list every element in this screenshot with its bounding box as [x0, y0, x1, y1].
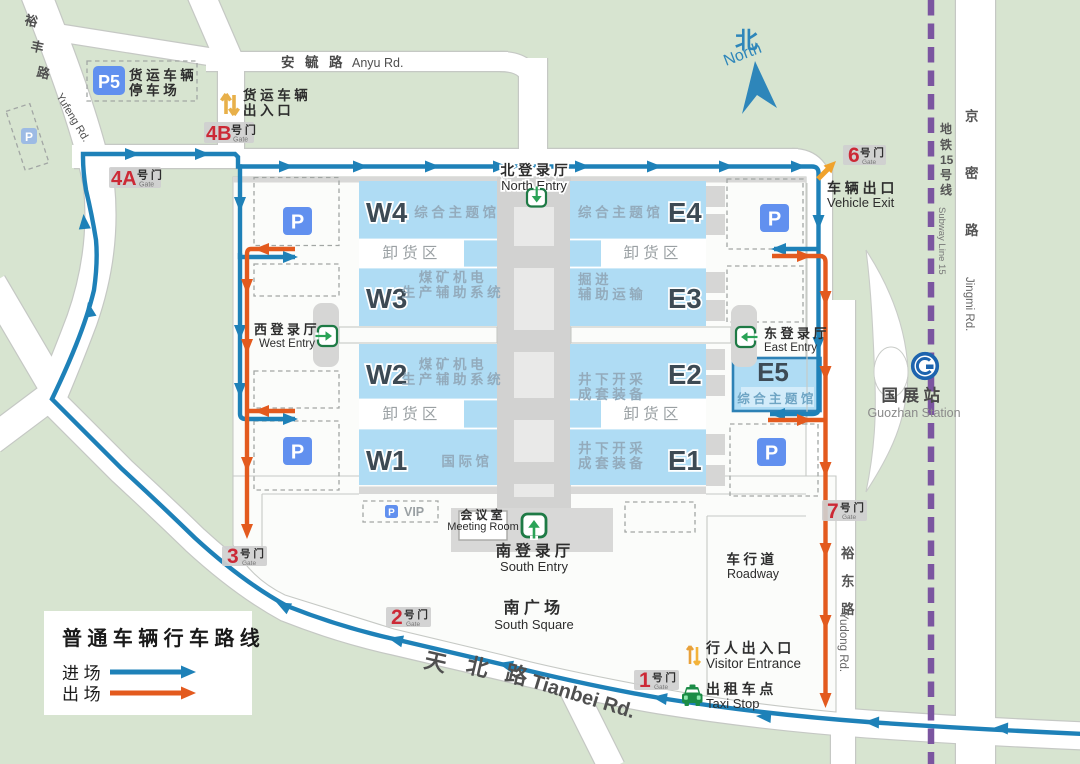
svg-text:E2: E2 [668, 359, 702, 390]
svg-text:卸货区: 卸货区 [382, 405, 441, 423]
svg-text:号门: 号门 [652, 671, 679, 684]
svg-text:号门: 号门 [840, 501, 867, 514]
svg-text:出入口: 出入口 [243, 102, 294, 118]
svg-text:进场: 进场 [62, 664, 105, 683]
svg-text:综合主题馆: 综合主题馆 [737, 391, 817, 406]
svg-text:Meeting Room: Meeting Room [447, 521, 519, 533]
svg-text:号: 号 [940, 167, 952, 182]
svg-text:2: 2 [391, 606, 403, 629]
svg-text:Taxi Stop: Taxi Stop [706, 696, 759, 711]
svg-text:Roadway: Roadway [727, 567, 780, 581]
svg-text:P5: P5 [98, 72, 120, 92]
svg-text:Gate: Gate [242, 560, 256, 567]
svg-text:E1: E1 [668, 445, 702, 476]
svg-text:生产辅助系统: 生产辅助系统 [402, 371, 505, 387]
svg-text:号门: 号门 [860, 146, 887, 159]
svg-text:Visitor Entrance: Visitor Entrance [706, 656, 801, 671]
svg-text:路: 路 [329, 54, 343, 70]
svg-text:Subway Line 15: Subway Line 15 [936, 207, 947, 275]
svg-text:密: 密 [964, 165, 979, 181]
svg-text:1: 1 [639, 669, 651, 692]
svg-text:P: P [768, 209, 781, 231]
svg-text:掘进: 掘进 [578, 271, 612, 287]
svg-text:成套装备: 成套装备 [578, 386, 646, 402]
svg-text:7: 7 [827, 500, 839, 523]
svg-text:号门: 号门 [240, 547, 267, 560]
svg-text:铁: 铁 [940, 137, 952, 152]
svg-text:West Entry: West Entry [259, 338, 315, 350]
svg-text:东登录厅: 东登录厅 [764, 326, 830, 341]
svg-text:线: 线 [940, 182, 952, 197]
svg-text:京: 京 [965, 108, 979, 124]
svg-text:号门: 号门 [404, 608, 431, 621]
svg-text:E5: E5 [757, 357, 789, 387]
svg-text:井下开采: 井下开采 [578, 440, 646, 456]
svg-text:East Entry: East Entry [764, 342, 817, 354]
svg-text:路: 路 [965, 222, 979, 238]
svg-text:东: 东 [841, 573, 855, 589]
svg-text:车行道: 车行道 [726, 551, 777, 567]
svg-text:生产辅助系统: 生产辅助系统 [402, 284, 505, 300]
svg-text:出租车点: 出租车点 [706, 681, 777, 697]
svg-text:Guozhan Station: Guozhan Station [867, 406, 960, 420]
svg-text:VIP: VIP [404, 505, 424, 519]
svg-text:E4: E4 [668, 197, 702, 228]
svg-text:毓: 毓 [305, 54, 319, 70]
svg-text:4B: 4B [206, 123, 232, 145]
svg-text:Jingmi Rd.: Jingmi Rd. [963, 277, 975, 331]
svg-text:15: 15 [940, 153, 954, 167]
svg-text:Vehicle Exit: Vehicle Exit [827, 195, 895, 210]
svg-text:地: 地 [940, 121, 952, 136]
svg-text:裕: 裕 [840, 545, 855, 561]
svg-text:号门: 号门 [231, 123, 259, 137]
svg-text:国展站: 国展站 [882, 385, 945, 405]
svg-text:车辆出口: 车辆出口 [827, 180, 898, 196]
svg-text:South Entry: South Entry [500, 559, 568, 574]
svg-text:北登录厅: 北登录厅 [500, 162, 571, 178]
svg-text:E3: E3 [668, 283, 702, 314]
svg-text:货运车辆: 货运车辆 [242, 87, 311, 103]
svg-text:Gate: Gate [233, 137, 248, 144]
svg-text:Gate: Gate [654, 684, 668, 691]
svg-text:综合主题馆: 综合主题馆 [578, 204, 664, 220]
svg-text:煤矿机电: 煤矿机电 [419, 356, 487, 372]
svg-text:安: 安 [281, 54, 295, 70]
svg-text:出场: 出场 [62, 685, 105, 704]
svg-text:Gate: Gate [842, 514, 856, 521]
svg-text:P: P [25, 130, 33, 144]
svg-text:南登录厅: 南登录厅 [496, 541, 575, 560]
svg-text:综合主题馆: 综合主题馆 [414, 204, 500, 220]
svg-text:卸货区: 卸货区 [623, 405, 682, 423]
svg-text:3: 3 [227, 545, 239, 568]
svg-text:井下开采: 井下开采 [578, 371, 646, 387]
svg-text:西登录厅: 西登录厅 [254, 322, 320, 337]
svg-text:P: P [291, 442, 304, 464]
svg-text:South Square: South Square [494, 617, 574, 632]
svg-text:P: P [765, 443, 778, 465]
svg-text:Gate: Gate [139, 182, 154, 189]
svg-text:成套装备: 成套装备 [578, 455, 646, 471]
svg-text:煤矿机电: 煤矿机电 [419, 269, 487, 285]
svg-text:辅助运输: 辅助运输 [578, 286, 646, 302]
svg-text:停车场: 停车场 [129, 82, 180, 98]
svg-text:南广场: 南广场 [504, 598, 565, 617]
svg-text:6: 6 [848, 144, 860, 167]
svg-text:货运车辆: 货运车辆 [128, 67, 197, 83]
svg-text:P: P [291, 212, 304, 234]
svg-text:Gate: Gate [406, 621, 420, 628]
svg-text:W4: W4 [366, 197, 408, 228]
svg-text:Anyu Rd.: Anyu Rd. [352, 56, 403, 70]
svg-text:W1: W1 [366, 445, 407, 476]
svg-text:P: P [388, 508, 395, 519]
svg-text:卸货区: 卸货区 [623, 244, 682, 262]
svg-text:行人出入口: 行人出入口 [705, 640, 795, 656]
svg-text:普通车辆行车路线: 普通车辆行车路线 [62, 626, 265, 650]
svg-text:国际馆: 国际馆 [441, 453, 492, 469]
svg-text:号门: 号门 [137, 168, 165, 182]
svg-text:会议室: 会议室 [460, 507, 506, 522]
svg-text:Gate: Gate [862, 159, 876, 166]
svg-text:Yudong Rd.: Yudong Rd. [837, 612, 849, 672]
svg-text:卸货区: 卸货区 [382, 244, 441, 262]
svg-text:4A: 4A [111, 168, 137, 190]
